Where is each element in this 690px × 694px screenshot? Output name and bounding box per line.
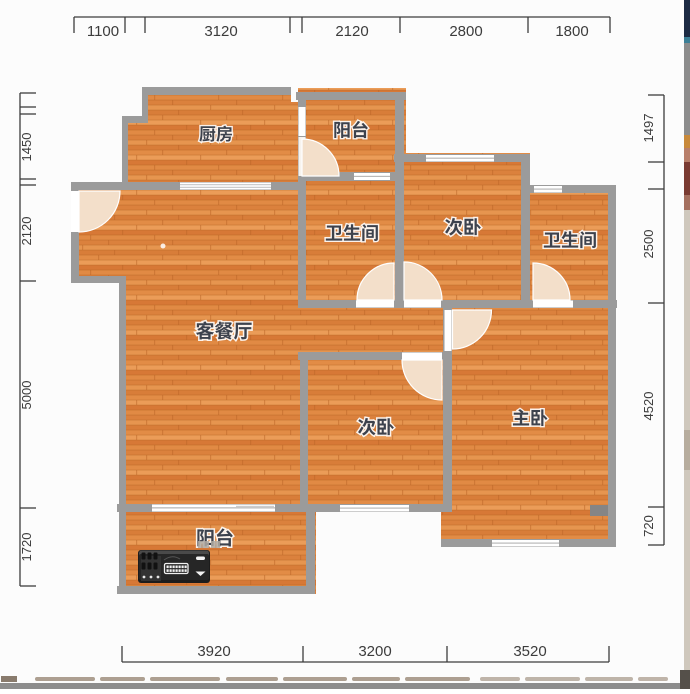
svg-text:1100: 1100 bbox=[87, 23, 119, 40]
svg-text:2500: 2500 bbox=[641, 230, 656, 259]
svg-text:2120: 2120 bbox=[335, 23, 368, 40]
svg-text:1720: 1720 bbox=[19, 533, 34, 562]
svg-text:1800: 1800 bbox=[555, 23, 588, 40]
svg-text:5000: 5000 bbox=[19, 381, 34, 410]
svg-text:3520: 3520 bbox=[513, 643, 546, 660]
svg-text:2800: 2800 bbox=[449, 23, 482, 40]
svg-text:4520: 4520 bbox=[641, 392, 656, 421]
svg-text:3200: 3200 bbox=[358, 643, 391, 660]
svg-text:1450: 1450 bbox=[19, 133, 34, 162]
svg-text:2120: 2120 bbox=[19, 217, 34, 246]
svg-text:1497: 1497 bbox=[641, 114, 656, 143]
svg-text:3120: 3120 bbox=[204, 23, 237, 40]
svg-text:3920: 3920 bbox=[197, 643, 230, 660]
svg-text:720: 720 bbox=[641, 515, 656, 537]
